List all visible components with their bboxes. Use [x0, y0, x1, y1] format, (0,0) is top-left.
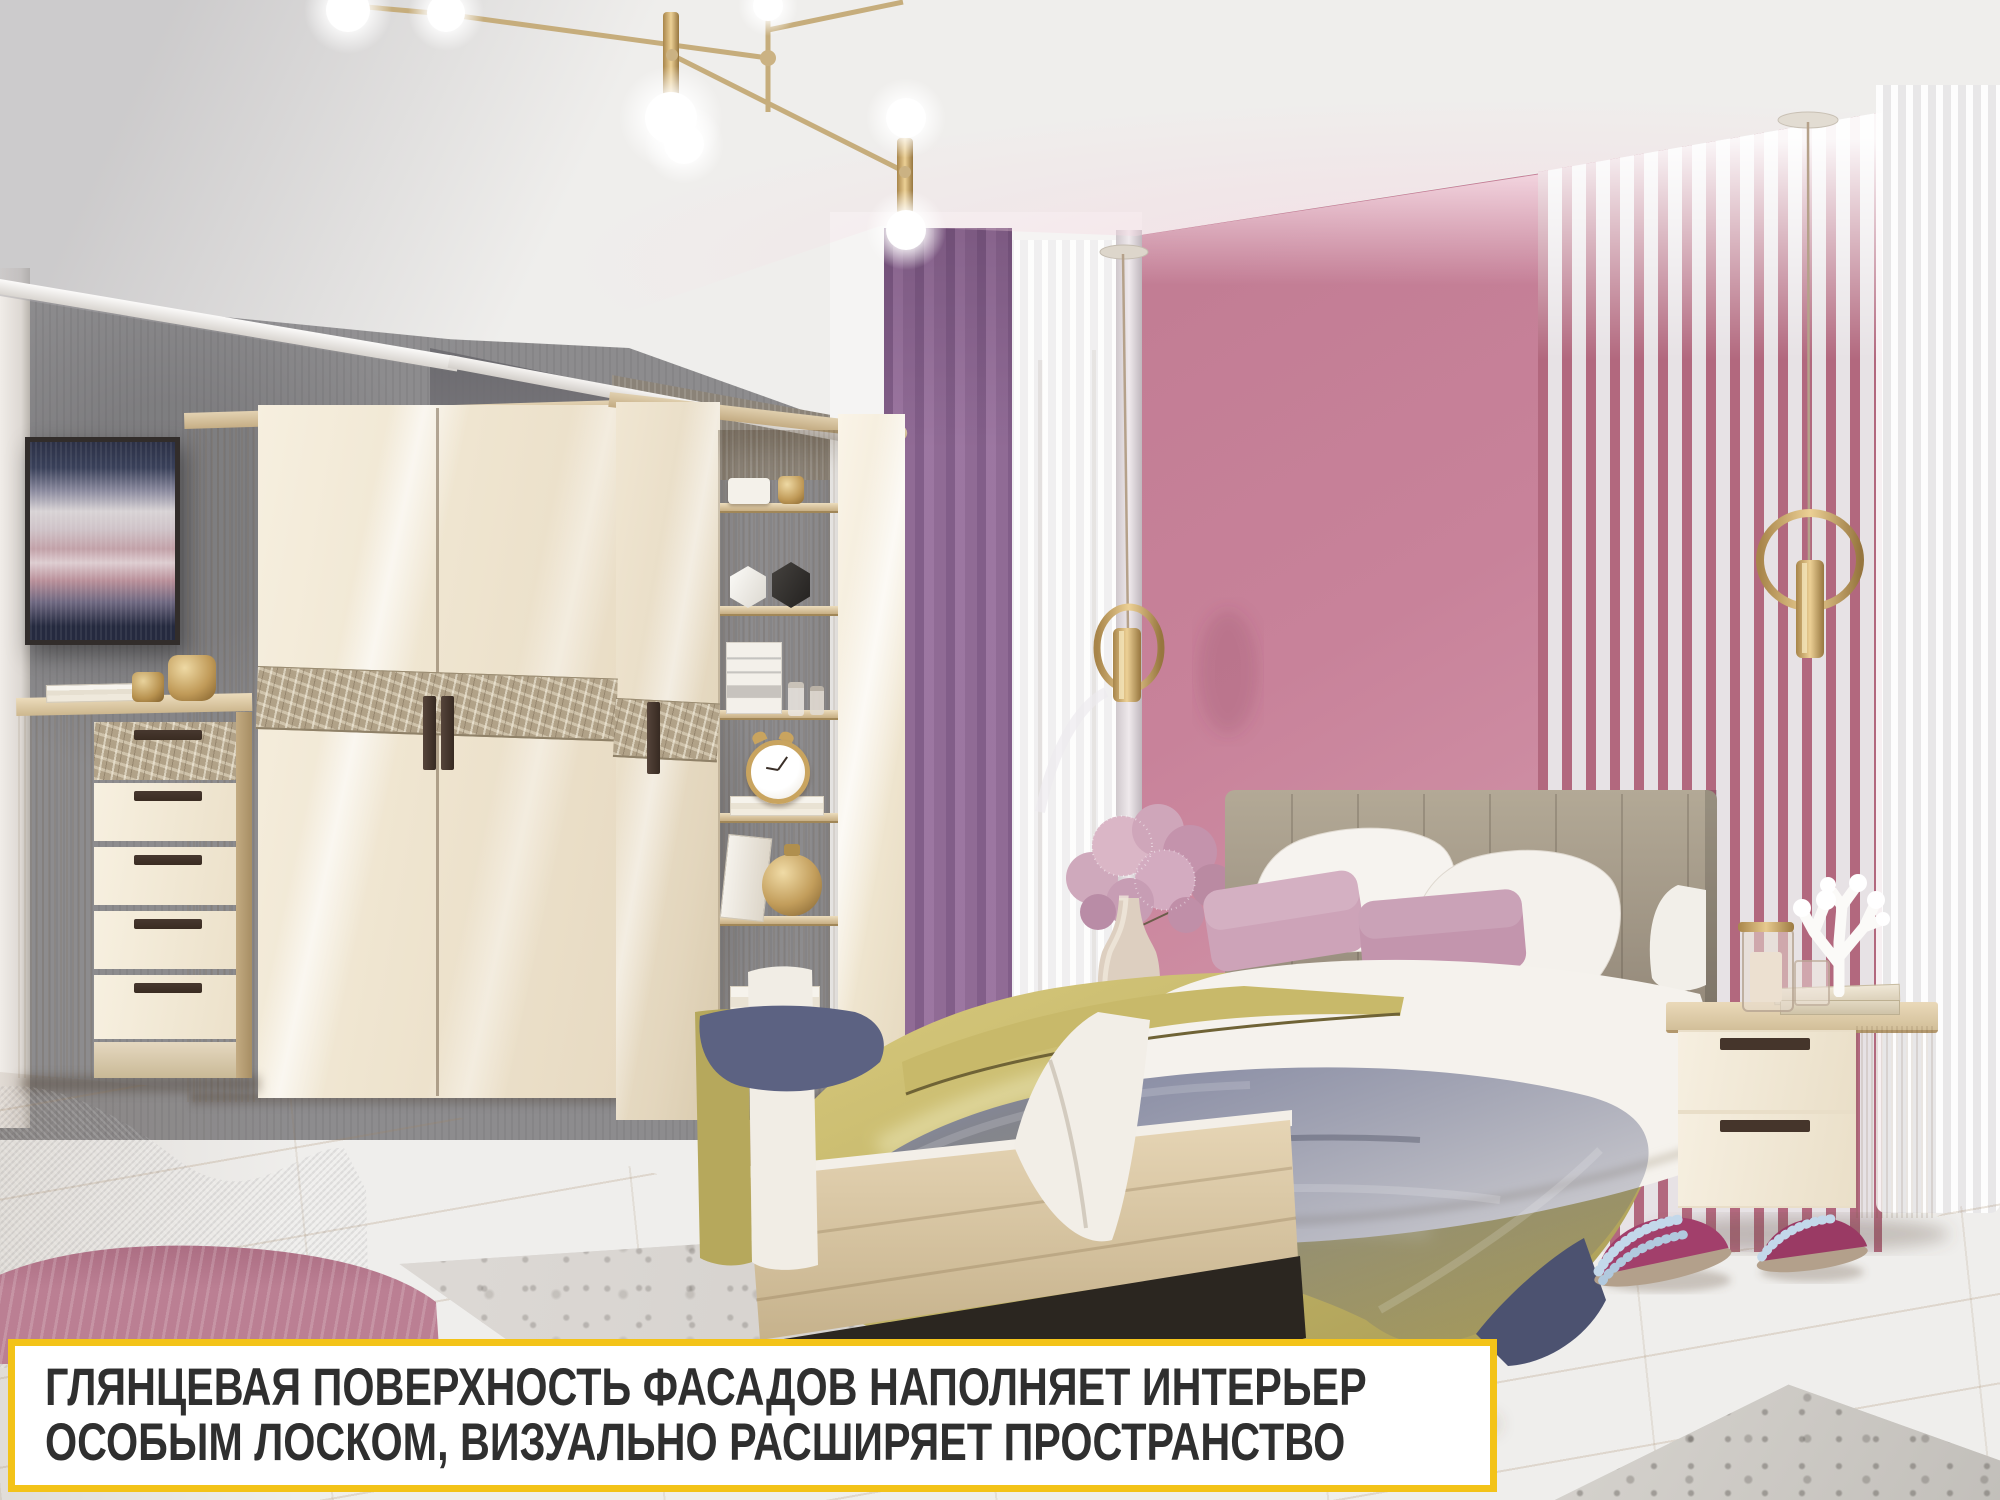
caption-banner: ГЛЯНЦЕВАЯ ПОВЕРХНОСТЬ ФАСАДОВ НАПОЛНЯЕТ … [8, 1339, 1497, 1492]
bedroom-photo: ГЛЯНЦЕВАЯ ПОВЕРХНОСТЬ ФАСАДОВ НАПОЛНЯЕТ … [0, 0, 2000, 1500]
candle [1750, 952, 1782, 1002]
wall-sconce-shadow [1198, 610, 1258, 734]
caption-line-2: ОСОБЫМ ЛОСКОМ, ВИЗУАЛЬНО РАСШИРЯЕТ ПРОСТ… [45, 1417, 1172, 1469]
pendant-light-right [1760, 112, 1860, 658]
nightstand-side-panel [1856, 1026, 1936, 1218]
feather-decor [1040, 692, 1106, 812]
nightstand-handle [1720, 1120, 1810, 1132]
white-coral-decor [1784, 872, 1894, 997]
nightstand-handle [1720, 1038, 1810, 1050]
pendant-light-left [1097, 245, 1161, 702]
candle-jar-lid [1738, 922, 1794, 932]
sputnik-chandelier [304, 0, 946, 270]
caption-line-1: ГЛЯНЦЕВАЯ ПОВЕРХНОСТЬ ФАСАДОВ НАПОЛНЯЕТ … [45, 1362, 1172, 1414]
